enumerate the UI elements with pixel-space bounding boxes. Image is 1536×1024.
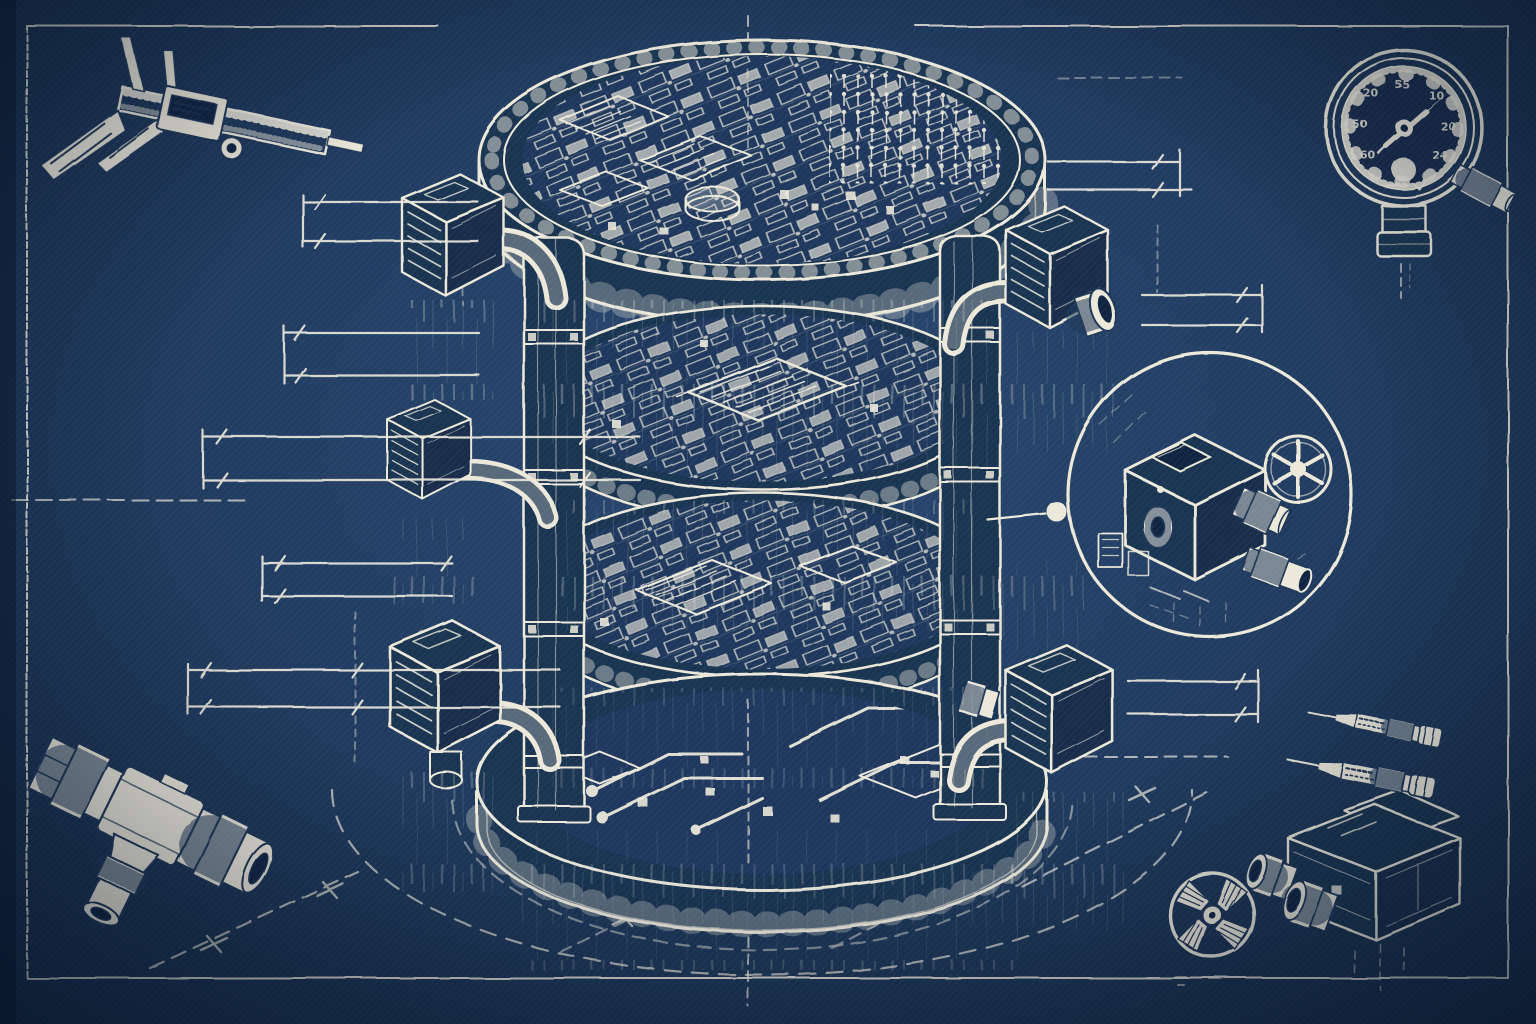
- blueprint-illustration: 20 55 10 20 24 50 60: [0, 0, 1536, 1024]
- vignette: [0, 0, 1536, 1024]
- blueprint-canvas: 20 55 10 20 24 50 60: [0, 0, 1536, 1024]
